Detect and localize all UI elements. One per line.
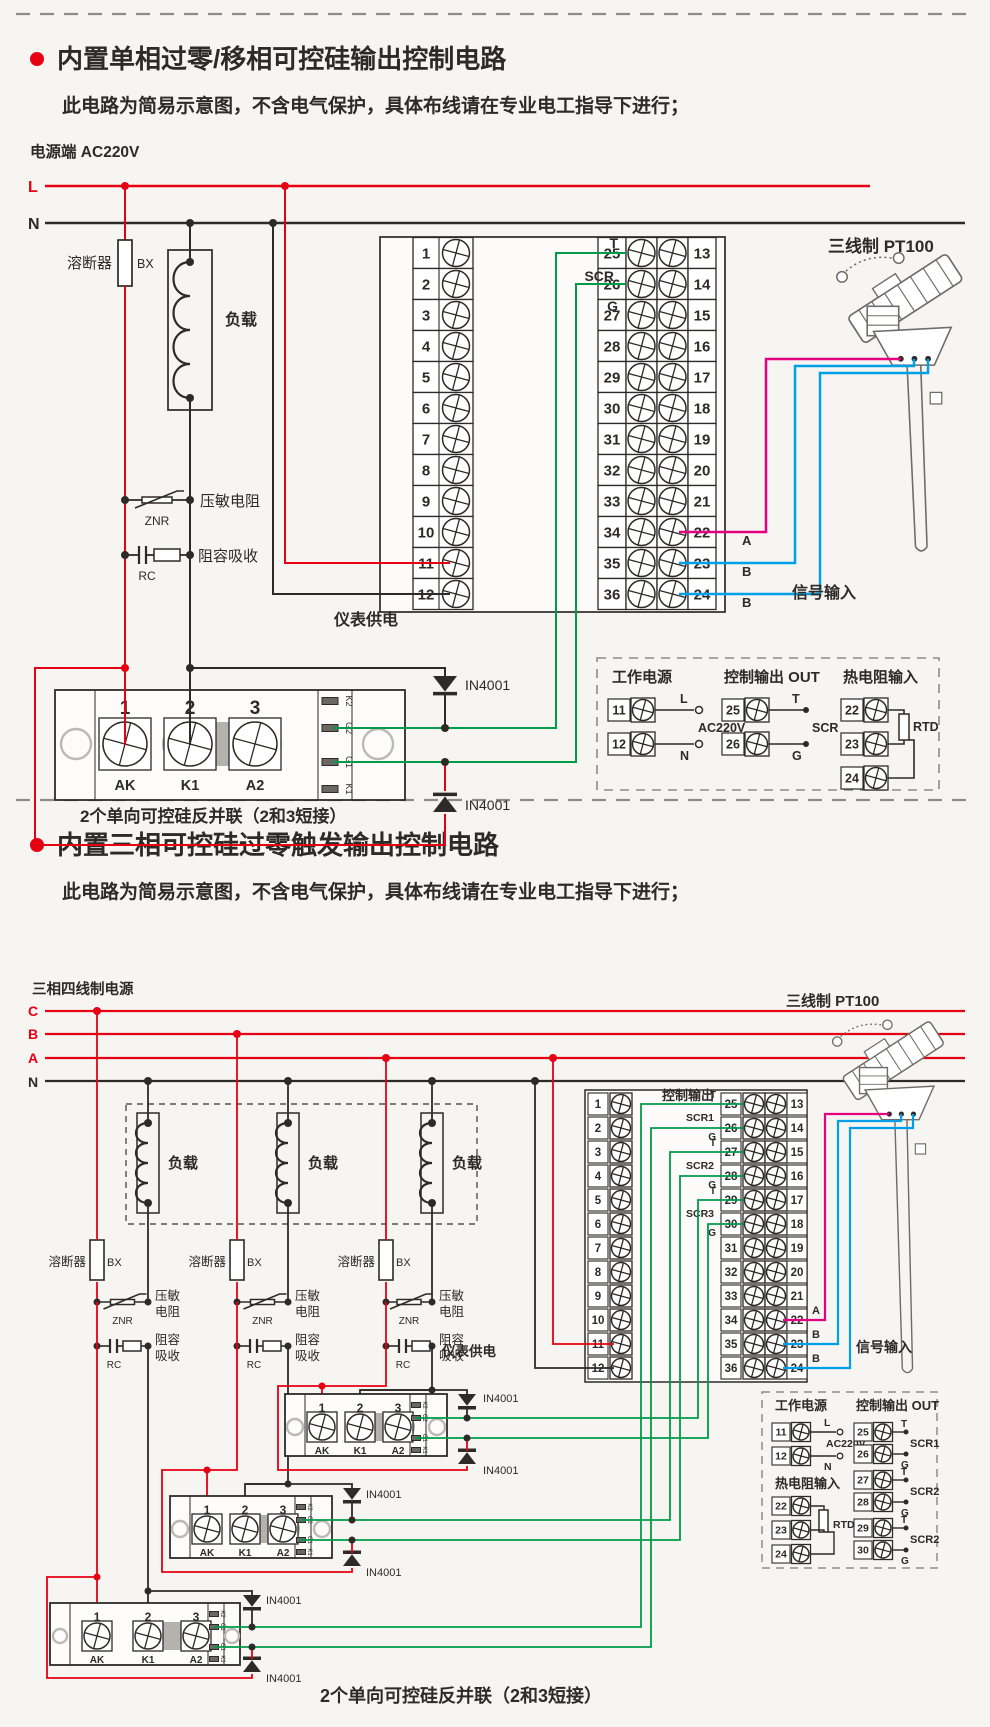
load-label: 负载 [168,1154,198,1172]
label: 12 [612,738,626,752]
rc-label: 吸收 [155,1349,181,1363]
wire-b-label: B [742,564,751,579]
module-terminal-label: K1 [239,1548,252,1559]
diode-icon [458,1394,476,1406]
terminal-number: 5 [595,1195,602,1207]
pt100-sensor-1 [837,245,963,551]
terminal-number: 21 [694,494,711,511]
coil-icon [136,1123,148,1203]
terminal-number: 25 [725,1099,738,1111]
row-scr-label: SCR3 [686,1208,714,1220]
power-source-label: 电源端 AC220V [30,142,140,161]
junction-dot [284,1119,292,1127]
znr-label: 电阻 [155,1305,181,1319]
legend-work-power: 工作电源 [612,668,672,686]
label: 11 [775,1427,786,1439]
wire [148,1591,252,1595]
shape [883,1020,892,1029]
ctrl-out-label: 控制输出 [662,1088,714,1103]
wire [245,1484,352,1488]
module-terminal-label: K1 [142,1655,155,1666]
terminal-number: 3 [422,308,430,325]
diode-icon [433,796,457,812]
junction-dot [441,724,449,732]
load-label: 负载 [452,1154,482,1172]
diode-label: IN4001 [266,1595,301,1607]
label: 22 [845,704,859,718]
open-terminal-icon [837,1429,843,1435]
terminal-number: 9 [595,1291,601,1303]
terminal-number: 19 [694,432,711,449]
junction-dot [186,551,194,559]
module-side-label: K2 [306,1503,312,1511]
terminal-number: 36 [604,587,621,604]
terminal-number: 8 [422,463,430,480]
out-scr-label: SCR [584,268,614,284]
label: 26 [857,1449,869,1461]
diode-icon [243,1660,261,1672]
resistor-icon [142,497,172,503]
terminal-number: 26 [725,1123,738,1135]
junction-dot [93,1007,101,1015]
junction-dot [904,1548,909,1553]
module-terminal-number: 3 [250,698,261,719]
wire-b-label: B [742,595,751,610]
rc-label: 阻容 [295,1332,320,1347]
terminal-number: 1 [422,246,430,263]
junction-dot [94,1574,101,1581]
znr-code: ZNR [112,1316,133,1327]
module-terminal-label: K1 [181,778,200,794]
label: L [824,1417,831,1429]
gate-terminal-icon [412,1448,421,1453]
power-source-label: 三相四线制电源 [32,980,134,998]
module-terminal-number: 2 [357,1401,364,1415]
label: N [680,749,689,763]
junction-dot [284,1077,292,1085]
terminal-number: 12 [592,1363,605,1375]
shape [895,1120,902,1369]
resistor-icon [154,549,180,561]
wire-a-label: A [812,1305,820,1317]
diode-label: IN4001 [366,1489,401,1501]
module-side-label: K2 [219,1610,225,1618]
fuse-label: 溶断器 [67,255,112,272]
terminal-number: 33 [604,494,621,511]
terminal-number: 10 [418,525,435,542]
label: RTD [833,1519,855,1531]
wiring-diagram-page: 内置单相过零/移相可控硅输出控制电路此电路为简易示意图，不含电气保护，具体布线请… [0,0,990,1727]
label: 25 [726,704,740,718]
module-terminal-number: 3 [193,1610,200,1624]
junction-dot [121,182,129,190]
legend-ctrl-out: 控制输出 OUT [856,1398,939,1413]
rc-label: 阻容吸收 [198,548,258,565]
terminal-number: 2 [422,277,430,294]
terminal-number: 28 [725,1171,738,1183]
shape [833,1037,842,1046]
module-side-label: K2 [344,695,354,706]
junction-dot [349,1537,356,1544]
label: T [792,692,800,706]
gate-terminal-icon [297,1505,306,1510]
junction-dot [121,664,129,672]
terminal-number: 11 [592,1339,605,1351]
junction-dot [464,1415,471,1422]
znr-code: ZNR [252,1316,273,1327]
terminal-number: 5 [422,370,430,387]
terminal-number: 20 [791,1267,804,1279]
terminal-number: 3 [595,1147,601,1159]
junction-dot [904,1430,909,1435]
terminal-number: 34 [725,1315,738,1327]
diode-icon [343,1488,361,1500]
fuse-code: BX [107,1257,122,1269]
junction-dot [428,1119,436,1127]
terminal-number: 15 [791,1147,804,1159]
terminal-number: 30 [725,1219,738,1231]
terminal-number: 35 [604,556,621,573]
junction-dot [249,1624,256,1631]
phase-c-label: C [28,1003,38,1019]
rc-code: RC [396,1360,410,1371]
legend-rtd-in: 热电阻输入 [843,668,918,686]
terminal-number: 35 [725,1339,738,1351]
fuse-icon [379,1240,393,1280]
phase-n-label: N [28,1074,38,1090]
wiring-diagram: 内置单相过零/移相可控硅输出控制电路此电路为简易示意图，不含电气保护，具体布线请… [0,0,990,1727]
label: 11 [612,704,625,718]
section1-subtitle: 此电路为简易示意图，不含电气保护，具体布线请在专业电工指导下进行； [62,94,689,117]
terminal-number: 15 [694,308,711,325]
row-t-label: T [710,1138,716,1149]
junction-dot [249,1644,256,1651]
module-side-label: K1 [219,1655,225,1663]
legend-scr3: SCR2 [910,1534,939,1546]
junction-dot [281,182,289,190]
label: T [901,1515,907,1526]
out-t-label: T [609,235,618,251]
shape [916,547,928,551]
module-terminal-label: K1 [354,1446,367,1457]
label: N [824,1461,832,1473]
line-n-label: N [28,216,40,233]
shape [907,1120,913,1369]
module-terminal-number: 1 [94,1610,101,1624]
label: 24 [775,1549,787,1561]
out-g-label: G [607,298,618,314]
terminal-number: 32 [604,463,621,480]
znr-label: 压敏电阻 [200,493,260,510]
module-terminal-number: 1 [204,1503,211,1517]
znr-label: 电阻 [295,1305,321,1319]
rc-code: RC [138,569,156,583]
terminal-number: 4 [595,1171,602,1183]
phase-b-label: B [28,1026,38,1042]
shape [915,1144,925,1154]
terminal-number: 31 [725,1243,738,1255]
fuse-label: 溶断器 [188,1254,226,1269]
junction-dot [186,258,194,266]
module-terminal-label: A2 [392,1446,405,1457]
label: 22 [775,1501,787,1513]
shape [837,1024,885,1040]
gate-terminal-icon [297,1550,306,1555]
module-terminal-number: 3 [280,1503,287,1517]
terminal-number: 29 [604,370,621,387]
diode-label: IN4001 [483,1393,518,1405]
module-terminal-number: 2 [145,1610,152,1624]
open-terminal-icon [696,707,703,714]
terminal-number: 32 [725,1267,738,1279]
terminal-number: 8 [595,1267,602,1279]
module-side-label: K2 [421,1401,427,1409]
gate-terminal-icon [412,1403,421,1408]
terminal-number: 14 [694,277,711,294]
terminal-number: 7 [595,1243,601,1255]
shape [837,272,848,283]
label: 24 [845,772,859,786]
meter-supply-label: 仪表供电 [441,1343,496,1359]
fuse-icon [118,240,132,286]
znr-label: 压敏 [155,1288,181,1303]
terminal-number: 27 [725,1147,738,1159]
signal-input-label: 信号输入 [856,1339,912,1355]
diode-icon [343,1554,361,1566]
terminal-number: 9 [422,494,430,511]
terminal-number: 34 [604,525,621,542]
label: T [901,1467,907,1478]
znr-code: ZNR [145,514,170,528]
terminal-number: 17 [791,1195,804,1207]
shape [921,365,927,547]
fuse-icon [230,1240,244,1280]
label: 26 [726,738,740,752]
label: 12 [775,1451,787,1463]
diode-icon [458,1452,476,1464]
rc-label: 吸收 [295,1349,321,1363]
coil-icon [276,1123,288,1203]
module-terminal-label: A2 [246,778,265,794]
junction-dot [319,1383,326,1390]
junction-dot [285,1481,292,1488]
junction-dot [531,1077,539,1085]
wire-b-label: B [812,1353,820,1365]
module-terminal-number: 1 [319,1401,326,1415]
junction-dot [349,1517,356,1524]
terminal-number: 33 [725,1291,738,1303]
terminal-number: 6 [422,401,430,418]
rc-label: 阻容 [155,1332,180,1347]
resistor-icon [263,1341,281,1351]
module-side-label: K1 [306,1548,312,1556]
znr-code: ZNR [399,1316,420,1327]
junction-dot [269,219,277,227]
label: 28 [857,1497,869,1509]
diode-label: IN4001 [266,1673,301,1685]
resistor-icon [412,1341,430,1351]
junction-dot [904,1452,909,1457]
legend-ctrl-out: 控制输出 OUT [724,668,820,686]
resistor-icon [899,714,909,740]
terminal-number: 6 [595,1219,601,1231]
junction-dot [464,1435,471,1442]
rc-code: RC [107,1360,121,1371]
junction-dot [121,496,129,504]
terminal-number: 21 [791,1291,804,1303]
section1-title: 内置单相过零/移相可控硅输出控制电路 [57,44,507,74]
znr-label: 电阻 [439,1305,465,1319]
label: L [680,692,688,706]
coil-icon [420,1123,432,1203]
module-terminal-label: AK [115,778,136,794]
junction-dot [904,1500,909,1505]
junction-dot [429,1299,436,1306]
label: 23 [845,738,859,752]
label: 27 [857,1475,869,1487]
label: 25 [857,1427,869,1439]
meter-supply-label: 仪表供电 [333,610,398,629]
label: G [792,749,802,763]
terminal-number: 7 [422,432,430,449]
shape [842,257,897,275]
legend-work-power: 工作电源 [775,1398,827,1413]
wire-b-label: B [812,1329,820,1341]
module-caption: 2个单向可控硅反并联（2和3短接） [80,806,346,826]
diode-label: IN4001 [483,1465,518,1477]
terminal-number: 31 [604,432,621,449]
junction-dot [144,1119,152,1127]
terminal-number: 29 [725,1195,738,1207]
znr-label: 压敏 [439,1288,465,1303]
terminal-number: 2 [595,1123,601,1135]
junction-dot [428,1077,436,1085]
shape [930,392,942,404]
junction-dot [144,1077,152,1085]
rc-code: RC [247,1360,261,1371]
wire [810,1532,834,1554]
junction-dot [429,1387,436,1394]
terminal-number: 13 [694,246,711,263]
junction-dot [549,1054,557,1062]
junction-dot [186,496,194,504]
pt100-title: 三线制 PT100 [828,236,934,256]
row-scr-label: SCR2 [686,1160,714,1172]
terminal-number: 20 [694,463,711,480]
label: 29 [857,1523,869,1535]
label: 30 [857,1545,869,1557]
terminal-number: 10 [592,1315,605,1327]
legend-rtd-in: 热电阻输入 [775,1476,840,1491]
gate-terminal-icon [210,1612,219,1617]
pt100-title: 三线制 PT100 [786,992,879,1010]
junction-dot [233,1030,241,1038]
diode-icon [433,676,457,692]
terminal-number: 17 [694,370,711,387]
gate-terminal-icon [322,698,338,705]
label: RTD [913,720,939,734]
junction-dot [441,758,449,766]
row-scr-label: SCR1 [686,1112,714,1124]
shape [902,1369,912,1373]
line-l-label: L [28,179,38,196]
module-side-label: K1 [421,1446,427,1454]
resistor-icon [123,1341,141,1351]
section2-subtitle: 此电路为简易示意图，不含电气保护，具体布线请在专业电工指导下进行； [62,880,689,903]
module-terminal-number: 3 [395,1401,402,1415]
terminal-number: 13 [791,1099,804,1111]
wire-a-label: A [742,533,752,548]
label: SCR [812,721,838,735]
open-terminal-icon [837,1453,843,1459]
fuse-code: BX [247,1257,262,1269]
module-terminal-label: A2 [190,1655,203,1666]
junction-dot [186,219,194,227]
legend-scr1: SCR1 [910,1438,939,1450]
terminal-number: 36 [725,1363,738,1375]
diode-label: IN4001 [366,1567,401,1579]
gate-terminal-icon [322,786,338,793]
terminal-number: 28 [604,339,621,356]
load-label: 负载 [308,1154,338,1172]
junction-dot [186,664,194,672]
terminal-number: 16 [791,1171,804,1183]
junction-dot [145,1588,152,1595]
legend-scr2: SCR2 [910,1486,939,1498]
shape [893,253,904,264]
junction-dot [803,707,809,713]
terminal-number: 18 [694,401,711,418]
load-label: 负载 [225,310,257,329]
module-terminal-number: 2 [242,1503,249,1517]
terminal-number: 14 [791,1123,804,1135]
junction-dot [803,741,809,747]
wire [888,740,914,778]
label: 23 [775,1525,787,1537]
junction-dot [904,1478,909,1483]
diode-icon [243,1595,261,1607]
znr-label: 压敏 [295,1288,321,1303]
row-g-label: G [708,1228,716,1239]
fuse-code: BX [396,1257,411,1269]
module-terminal-label: AK [200,1548,215,1559]
terminal-number: 1 [595,1099,602,1111]
coil-icon [174,262,191,398]
gate-terminal-icon [210,1657,219,1662]
junction-dot [382,1054,390,1062]
fuse-label: 溶断器 [48,1254,86,1269]
junction-dot [285,1299,292,1306]
module-terminal-label: AK [90,1655,105,1666]
junction-dot [121,551,129,559]
module-terminal-label: AK [315,1446,330,1457]
terminal-number: 18 [791,1219,804,1231]
phase-a-label: A [28,1050,38,1066]
fuse-icon [90,1240,104,1280]
terminal-number: 19 [791,1243,804,1255]
resistor-icon [819,1510,828,1532]
fuse-code: BX [137,257,154,271]
module-terminal-label: A2 [277,1548,290,1559]
label: G [901,1556,909,1567]
row-t-label: T [710,1090,716,1101]
wire [190,668,445,676]
signal-input-label: 信号输入 [792,583,856,602]
module-caption: 2个单向可控硅反并联（2和3短接） [320,1685,602,1706]
diode-label: IN4001 [465,797,510,813]
terminal-number: 4 [422,339,431,356]
junction-dot [904,1526,909,1531]
